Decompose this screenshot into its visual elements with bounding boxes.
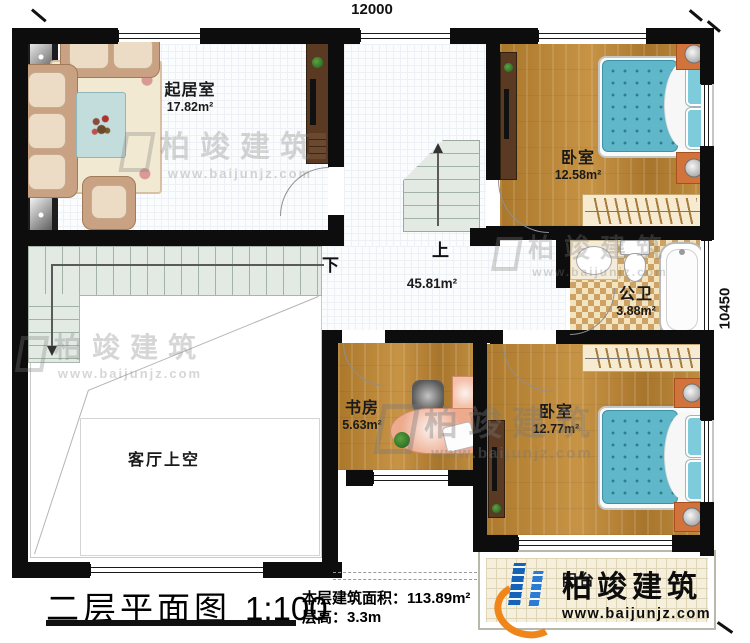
dimension-tick (689, 9, 703, 21)
stairs-down-walkline-turn (51, 264, 53, 346)
plant-icon (504, 63, 513, 72)
label-stairs-up: 上 (432, 236, 449, 261)
room-area: 45.81m² (407, 276, 457, 292)
sofa-left (20, 64, 78, 198)
wall (700, 336, 714, 420)
lamp-icon (683, 508, 702, 527)
window (360, 30, 452, 42)
room-name: 卧室 (561, 150, 595, 168)
wall (700, 28, 714, 84)
stairs-down-walkline (52, 264, 324, 266)
void-inner-outline (80, 418, 320, 556)
room-area: 12.58m² (555, 168, 602, 182)
wall (322, 330, 338, 578)
plant-icon (492, 504, 501, 513)
floor-info: 本层建筑面积：113.89m² 层高：3.3m (302, 589, 470, 627)
brand-url: www.baijunjz.com (562, 606, 711, 622)
wall (12, 230, 344, 246)
sink-counter (570, 240, 618, 280)
label-hall-area: 45.81m² (396, 276, 468, 292)
window (701, 84, 712, 148)
wall (486, 226, 714, 240)
wall (12, 562, 90, 578)
room-name: 公卫 (619, 286, 653, 304)
wall (672, 535, 714, 552)
dimension-tick (31, 9, 46, 22)
table-flowers (89, 111, 113, 139)
window (701, 420, 712, 504)
wardrobe-rail (585, 211, 703, 212)
wall (346, 470, 373, 486)
floor-plan-canvas: 起居室 17.82m² 卧室 12.58m² 公卫 3.88m² 书房 5.63… (0, 0, 750, 643)
tv-screen (504, 89, 509, 139)
speaker-dot (39, 55, 44, 60)
wardrobe-bedroom2 (582, 344, 706, 372)
speaker-dot (39, 213, 44, 218)
sofa-chair (82, 176, 136, 230)
wall (12, 28, 28, 578)
window (118, 30, 202, 42)
stairs-down-arrow (47, 346, 57, 356)
window (90, 564, 265, 576)
label-bedroom2: 卧室 12.77m² (514, 404, 598, 437)
floor-height-label: 层高： (302, 609, 347, 626)
label-living-room: 起居室 17.82m² (148, 82, 232, 115)
wall (556, 240, 570, 288)
wall (328, 28, 344, 167)
window (373, 472, 450, 484)
room-name: 起居室 (164, 82, 215, 100)
plant-icon (312, 57, 323, 68)
wall (490, 330, 503, 344)
bathtub-faucet (679, 249, 685, 255)
room-name: 书房 (345, 400, 379, 418)
lamp-icon (683, 384, 702, 403)
bed-bedroom2 (598, 406, 714, 510)
label-bedroom1: 卧室 12.58m² (536, 150, 620, 183)
sofa-cushion (28, 113, 66, 149)
window (538, 30, 648, 42)
dimension-top: 12000 (332, 1, 412, 18)
plant-icon (394, 432, 410, 448)
wardrobe-rail (585, 358, 703, 359)
wardrobe-bedroom1 (582, 194, 706, 228)
floor-area-value: 113.89m² (407, 590, 470, 607)
sofa-cushion (28, 72, 66, 108)
stairs-up-arrow (433, 143, 443, 153)
dimension-right: 10450 (717, 278, 734, 340)
wall (473, 535, 518, 552)
wall (486, 28, 500, 180)
room-area: 5.63m² (342, 418, 382, 432)
floor-area-label: 本层建筑面积： (302, 590, 407, 607)
wall (448, 470, 476, 486)
tv-screen (310, 79, 316, 125)
window (518, 537, 674, 550)
wall (470, 228, 500, 246)
bed-bedroom1 (598, 56, 714, 158)
label-study: 书房 5.63m² (322, 400, 402, 433)
coffee-table (76, 92, 126, 158)
brand-logo-icon (496, 556, 554, 628)
label-stairs-down: 下 (322, 251, 339, 276)
cabinet-shelves (309, 133, 326, 159)
wall (473, 330, 487, 552)
wall (556, 330, 714, 344)
stairs-down-run (28, 246, 322, 296)
floor-height-value: 3.3m (347, 609, 381, 626)
window (701, 240, 712, 338)
brand-name: 柏竣建筑 (562, 562, 711, 606)
sink-basin (576, 246, 612, 275)
stairs-up-walkline (437, 152, 439, 226)
label-void: 客厅上空 (128, 446, 200, 470)
title-underline (46, 620, 296, 626)
room-area: 3.88m² (616, 304, 656, 318)
brand-logo: 柏竣建筑 www.baijunjz.com (496, 556, 711, 628)
sofa-cushion (91, 185, 127, 219)
sofa-cushion (28, 154, 66, 190)
room-area: 17.82m² (167, 100, 214, 114)
tv-screen (492, 447, 497, 491)
room-area: 12.77m² (533, 422, 580, 436)
room-name: 卧室 (539, 404, 573, 422)
label-bathroom: 公卫 3.88m² (596, 286, 676, 319)
hidden-edge-dashed (333, 572, 477, 580)
tv-cabinet-bedroom2 (488, 420, 505, 518)
dimension-tick (717, 621, 733, 634)
tv-cabinet-bedroom1 (500, 52, 517, 180)
tv-cabinet-living (306, 40, 330, 164)
